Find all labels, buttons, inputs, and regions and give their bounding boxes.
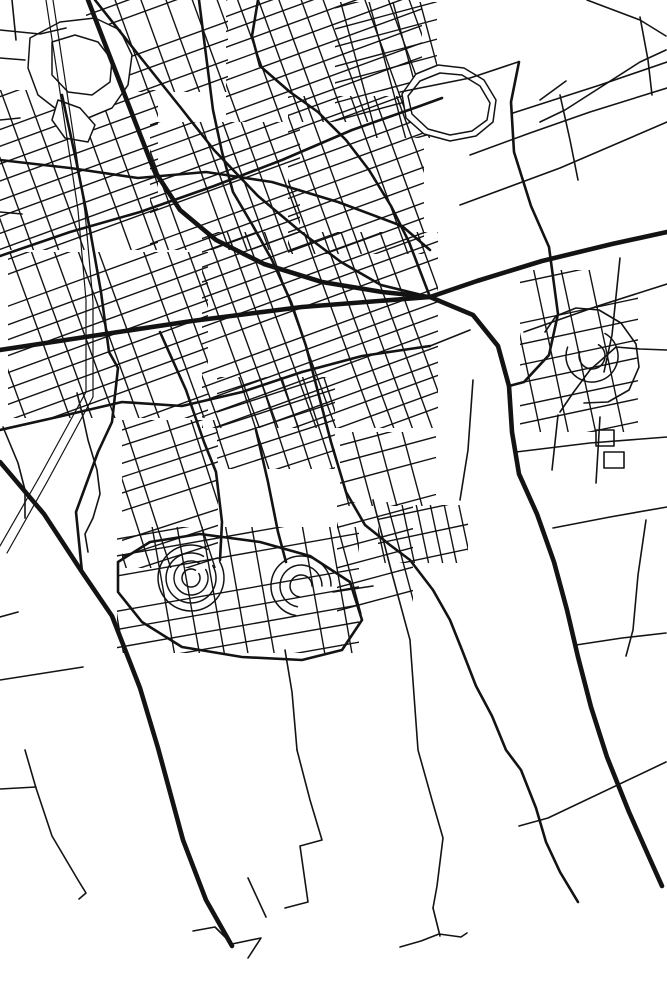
parks-and-water: [28, 18, 496, 142]
motorways: [0, 0, 667, 946]
minor-roads: [0, 0, 667, 958]
city-street-map: [0, 0, 667, 1000]
map-poster: [0, 0, 667, 1000]
